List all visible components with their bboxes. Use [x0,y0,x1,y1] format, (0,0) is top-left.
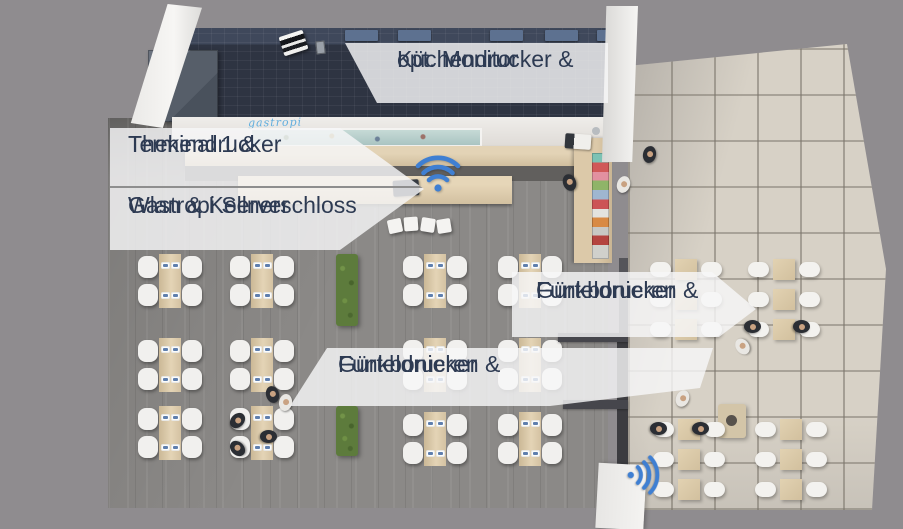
table-top [519,412,541,466]
chair [403,442,423,464]
bar-front-logo: gastropi [248,116,302,130]
person-head [266,434,272,440]
napkin [265,348,270,351]
napkin [163,294,168,297]
place-setting [171,444,180,451]
callout-text: Gürteldrucker [536,277,675,304]
napkin [173,416,178,419]
callout-text: Gürteldrucker [338,351,477,378]
napkin [428,264,433,267]
place-setting [436,262,445,269]
person-head [698,426,704,432]
place-setting [253,444,262,451]
chair [403,256,423,278]
place-setting [161,262,170,269]
person-head [738,342,746,350]
table-top [773,259,795,280]
place-setting [426,420,435,427]
place-setting [263,262,272,269]
napkin [255,378,260,381]
callout-terrace-printer: Funkbonieren & Gürteldrucker [512,272,757,337]
wifi-arcs [638,457,658,492]
napkin [255,264,260,267]
napkin [255,294,260,297]
person [260,430,277,443]
place-setting [426,450,435,457]
chair [704,482,725,497]
napkin [255,446,260,449]
terrace-table [748,258,820,282]
person [744,320,761,333]
chair [274,408,294,430]
chair [704,452,725,467]
chair [447,256,467,278]
place-setting [161,292,170,299]
table-top [780,419,802,440]
callout-text: opt. Monitor [397,46,518,73]
dining-table [403,254,467,308]
dining-table [138,338,202,392]
napkin [428,294,433,297]
napkin [173,348,178,351]
dining-table [138,254,202,308]
person-head [799,324,805,330]
napkin [533,422,538,425]
terrace-table [755,448,827,472]
table-top [780,479,802,500]
chair [138,256,158,278]
person-head [656,426,662,432]
kitchen-printer-device [279,30,309,57]
hedge-planter [336,254,358,326]
terrace-table [748,288,820,312]
person-head [269,390,276,397]
kitchen-monitor-device [315,41,325,55]
napkin [265,294,270,297]
table-top [780,449,802,470]
person-head [566,178,574,186]
chair [274,284,294,306]
chair [447,414,467,436]
place-setting [161,444,170,451]
napkin [255,348,260,351]
chair [138,436,158,458]
napkin [163,378,168,381]
person [650,422,667,435]
chair [799,292,820,307]
napkin [265,416,270,419]
callout-text: Wlan & Kellnerschloss [128,192,357,219]
place-setting [161,346,170,353]
place-setting [253,262,262,269]
person-head [679,394,687,402]
scene-canvas: gastropi Küchendrucker & [0,0,903,529]
table-top [251,338,273,392]
chair [755,422,776,437]
napkin [428,452,433,455]
napkin [428,422,433,425]
napkin [265,264,270,267]
callout-text: Thekendrucker [128,131,281,158]
chair [138,368,158,390]
place-setting [521,420,530,427]
person-head [750,324,756,330]
place-setting [263,376,272,383]
place-setting [253,292,262,299]
place-setting [436,450,445,457]
napkin [523,422,528,425]
napkin [255,416,260,419]
chair [138,284,158,306]
person [793,320,810,333]
chair [748,292,769,307]
chair [182,340,202,362]
table-top [678,479,700,500]
chair [806,452,827,467]
person-head [647,151,654,158]
table-top [159,338,181,392]
table-top [159,406,181,460]
wifi-icon-bar [414,150,462,196]
kitchen-equipment [545,30,578,41]
chair [274,436,294,458]
person-head [234,416,242,424]
napkin [533,452,538,455]
place-setting [253,346,262,353]
napkin [173,378,178,381]
terrace-table [755,418,827,442]
place-setting [161,414,170,421]
bar-stool [387,218,404,235]
napkin [265,446,270,449]
napkin [173,446,178,449]
napkin [523,264,528,267]
person [692,422,709,435]
napkin [163,446,168,449]
dining-table [230,254,294,308]
bar-stool [420,217,436,233]
dining-table [230,338,294,392]
drinks-shelf [592,153,609,259]
counter-gadget [592,127,600,135]
place-setting [436,420,445,427]
napkin [533,264,538,267]
chair [274,340,294,362]
chair [182,408,202,430]
callout-divider [110,186,425,188]
table-top [424,412,446,466]
kitchen-equipment [398,30,431,41]
napkin [173,264,178,267]
place-setting [171,262,180,269]
napkin [438,264,443,267]
callout-kitchen-printer: Küchendrucker & opt. Monitor [345,43,608,103]
napkin [163,348,168,351]
place-setting [253,414,262,421]
place-setting [426,292,435,299]
napkin [163,264,168,267]
chair [755,482,776,497]
napkin [438,294,443,297]
napkin [265,378,270,381]
table-top [773,289,795,310]
place-setting [253,376,262,383]
wifi-dot [628,472,634,478]
person-head [620,180,628,188]
chair [230,256,250,278]
napkin [163,416,168,419]
chair [498,442,518,464]
place-setting [171,292,180,299]
chair [542,442,562,464]
chair [498,414,518,436]
chair [403,284,423,306]
place-setting [171,346,180,353]
table-top [159,254,181,308]
place-setting [521,450,530,457]
place-setting [263,346,272,353]
chair [748,262,769,277]
chair [806,482,827,497]
person-head [283,399,290,406]
napkin [173,294,178,297]
chair [182,368,202,390]
chair [230,284,250,306]
kitchen-equipment [345,30,378,41]
napkin [523,452,528,455]
chair [447,284,467,306]
bar-stool [404,217,419,232]
place-setting [426,262,435,269]
place-setting [263,292,272,299]
dining-table [403,412,467,466]
chair [274,368,294,390]
table-top [251,254,273,308]
chair [182,284,202,306]
napkin [438,422,443,425]
chair [447,442,467,464]
wifi-icon-entrance [624,454,664,496]
place-setting [263,444,272,451]
place-setting [436,292,445,299]
bin-opening [726,415,737,426]
dining-table [498,412,562,466]
terrace-table [755,478,827,502]
chair [230,368,250,390]
chair [806,422,827,437]
chair [182,436,202,458]
chair [799,262,820,277]
place-setting [171,414,180,421]
place-setting [171,376,180,383]
kitchen-equipment [490,30,523,41]
chair [542,414,562,436]
chair [230,340,250,362]
place-setting [531,450,540,457]
chair [138,340,158,362]
place-setting [263,414,272,421]
chair [138,408,158,430]
person-head [233,444,241,452]
chair [755,452,776,467]
place-setting [531,420,540,427]
place-setting [531,262,540,269]
napkin [438,452,443,455]
table-top [773,319,795,340]
wifi-arcs [418,158,458,180]
bar-stool [436,218,452,234]
hedge-planter [336,406,358,456]
table-top [678,449,700,470]
counter-printer-device [565,133,592,150]
chair [182,256,202,278]
wifi-dot [434,184,441,191]
place-setting [521,262,530,269]
chair [274,256,294,278]
place-setting [161,376,170,383]
chair [403,414,423,436]
dining-table [138,406,202,460]
table-top [424,254,446,308]
